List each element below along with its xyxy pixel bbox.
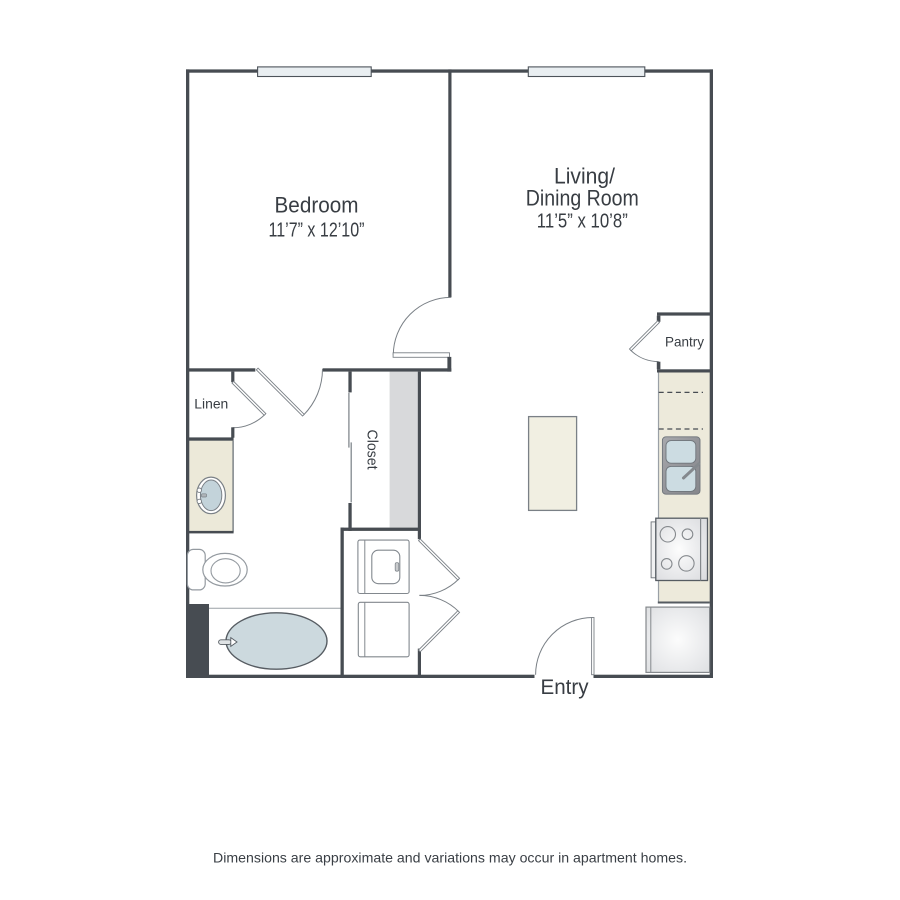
svg-text:Entry: Entry bbox=[541, 676, 589, 699]
svg-text:Dimensions are approximate and: Dimensions are approximate and variation… bbox=[213, 850, 687, 866]
svg-text:Pantry: Pantry bbox=[665, 334, 704, 350]
svg-text:11’7” x 12’10”: 11’7” x 12’10” bbox=[269, 219, 365, 242]
svg-text:Dining Room: Dining Room bbox=[526, 186, 639, 211]
svg-text:Bedroom: Bedroom bbox=[275, 193, 359, 218]
svg-text:Linen: Linen bbox=[194, 396, 228, 412]
svg-text:11’5” x 10’8”: 11’5” x 10’8” bbox=[537, 210, 628, 233]
svg-text:Closet: Closet bbox=[364, 430, 381, 471]
